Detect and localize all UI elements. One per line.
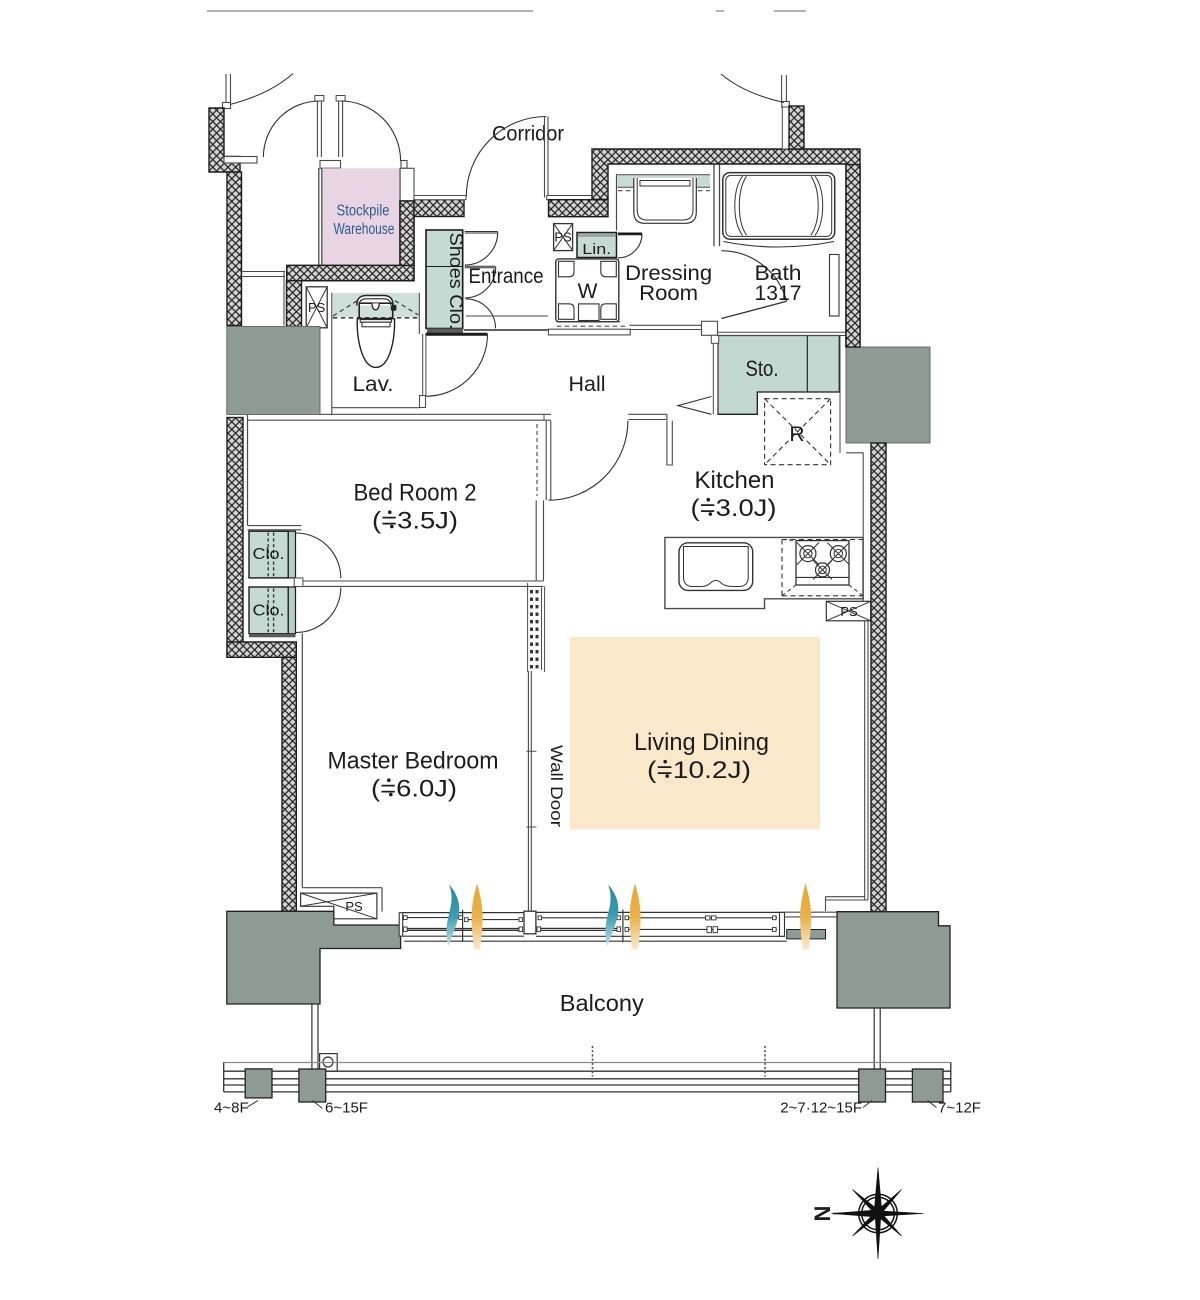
svg-text:Warehouse: Warehouse <box>334 221 395 238</box>
svg-text:Balcony: Balcony <box>560 990 645 1016</box>
svg-text:Entrance: Entrance <box>469 265 544 288</box>
svg-text:(=6.0J): (=6.0J) <box>371 776 457 803</box>
svg-text:Hall: Hall <box>569 373 606 396</box>
svg-text:Stockpile: Stockpile <box>337 203 390 220</box>
svg-text:Kitchen: Kitchen <box>695 467 775 494</box>
svg-text:(=3.5J): (=3.5J) <box>372 508 458 535</box>
svg-text:Living Dining: Living Dining <box>634 729 769 756</box>
svg-text:2~7·12~15F: 2~7·12~15F <box>780 1100 862 1117</box>
svg-text:PS: PS <box>345 899 363 914</box>
svg-text:Room: Room <box>639 282 698 305</box>
svg-text:Clo.: Clo. <box>253 603 285 620</box>
svg-text:Clo.: Clo. <box>253 546 285 563</box>
svg-text:R: R <box>789 423 804 446</box>
svg-text:Lin.: Lin. <box>582 242 611 258</box>
svg-text:Sto.: Sto. <box>746 356 779 381</box>
svg-text:Corridor: Corridor <box>492 123 564 146</box>
svg-text:Shoes Clo.: Shoes Clo. <box>446 233 466 330</box>
svg-text:(=3.0J): (=3.0J) <box>691 495 777 522</box>
svg-text:7~12F: 7~12F <box>938 1100 981 1117</box>
svg-text:W: W <box>578 280 598 303</box>
svg-text:PS: PS <box>840 604 858 619</box>
svg-text:4~8F: 4~8F <box>214 1100 249 1117</box>
svg-text:(=10.2J): (=10.2J) <box>647 757 751 784</box>
svg-text:N: N <box>810 1206 835 1222</box>
svg-text:Bed Room 2: Bed Room 2 <box>354 480 477 507</box>
svg-text:Master Bedroom: Master Bedroom <box>328 748 499 775</box>
svg-text:6~15F: 6~15F <box>325 1100 368 1117</box>
svg-text:Wall Door: Wall Door <box>547 745 566 827</box>
svg-text:PS: PS <box>308 300 326 315</box>
svg-text:Lav.: Lav. <box>353 373 394 396</box>
svg-text:1317: 1317 <box>755 282 802 305</box>
svg-text:PS: PS <box>554 230 572 245</box>
